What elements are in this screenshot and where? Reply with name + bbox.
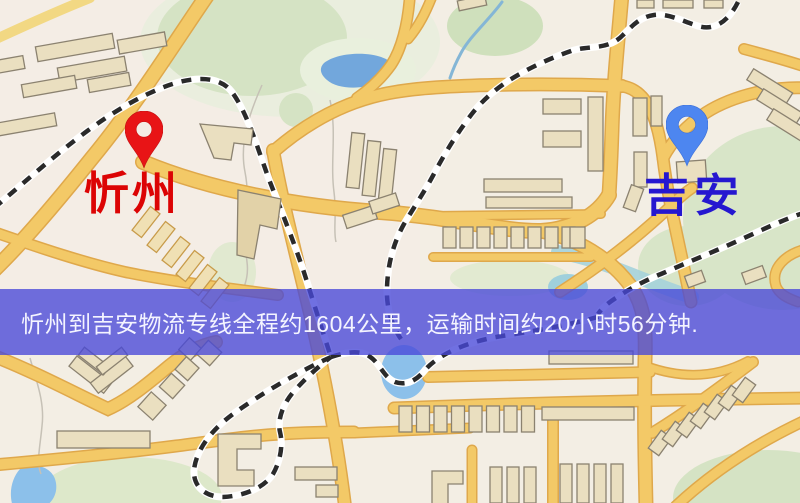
origin-city-label: 忻州 [84, 172, 180, 217]
map-pin-icon [666, 105, 708, 167]
route-info-banner: 忻州到吉安物流专线全程约1604公里，运输时间约20小时56分钟. [0, 289, 800, 355]
origin-pin[interactable] [125, 111, 163, 169]
route-info-text: 忻州到吉安物流专线全程约1604公里，运输时间约20小时56分钟. [21, 305, 698, 339]
destination-pin[interactable] [666, 105, 708, 167]
map-screenshot: 忻州 吉安 忻州到吉安物流专线全程约1604公里，运输时间约20小时56分钟. [0, 0, 800, 503]
map-pin-icon [125, 111, 163, 169]
destination-city-label: 吉安 [644, 174, 744, 219]
map-background [0, 0, 800, 503]
